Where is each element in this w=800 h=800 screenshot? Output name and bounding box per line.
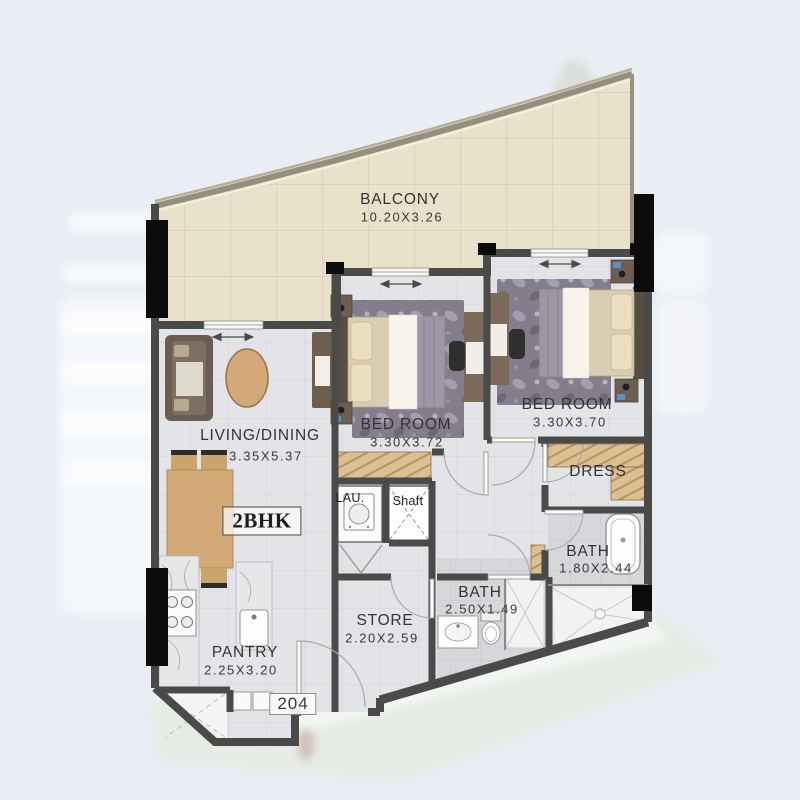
bath2-name: BATH [458, 584, 501, 602]
bedroom2-name: BED ROOM [522, 396, 613, 414]
bath2-dim: 2.50X1.49 [445, 602, 519, 617]
pantry-name: PANTRY [212, 644, 278, 662]
living-name: LIVING/DINING [200, 427, 320, 445]
store-name: STORE [356, 612, 413, 630]
pantry-dim: 2.25X3.20 [204, 663, 278, 678]
bedroom2-dim: 3.30X3.70 [533, 415, 607, 430]
laundry-name: LAU. [336, 491, 365, 505]
living-dim: 3.35X5.37 [229, 449, 303, 464]
floor-plan-page: BALCONY 10.20X3.26 LIVING/DINING 3.35X5.… [0, 0, 800, 800]
bedroom1-name: BED ROOM [361, 416, 452, 434]
shaft-name: Shaft [393, 494, 424, 508]
balcony-dim: 10.20X3.26 [361, 210, 444, 225]
bedroom2-furniture [488, 260, 646, 405]
bedroom1-dim: 3.30X3.72 [370, 435, 444, 450]
unit-number-badge: 204 [269, 693, 316, 715]
bath1-name: BATH [566, 543, 609, 561]
unit-type-badge: 2BHK [222, 507, 301, 536]
floor-plan-drawing [0, 0, 800, 800]
dress-name: DRESS [569, 463, 626, 481]
bath1-dim: 1.80X2.44 [559, 561, 633, 576]
store-dim: 2.20X2.59 [345, 631, 419, 646]
balcony-name: BALCONY [360, 191, 440, 209]
